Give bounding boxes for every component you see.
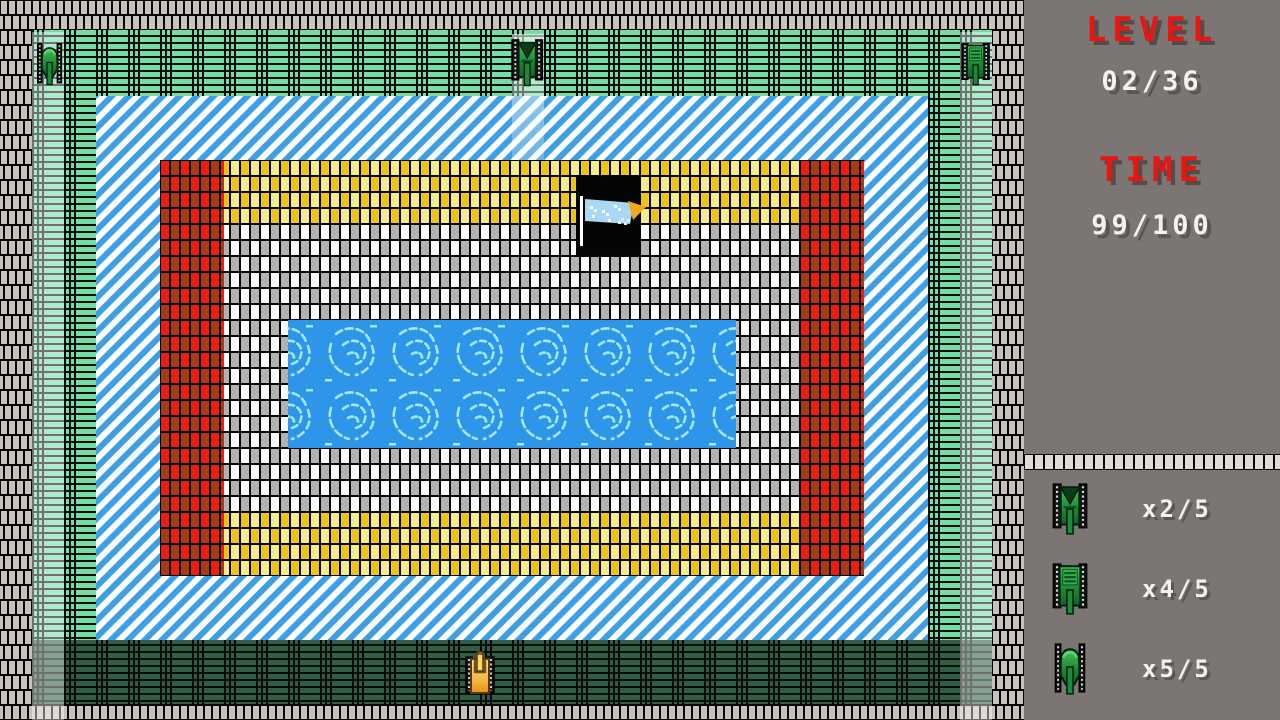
tank-class-3-icon bbox=[1048, 640, 1092, 698]
enemy-tank-top-center[interactable] bbox=[512, 40, 542, 86]
hedge-bottom-band bbox=[32, 640, 992, 704]
tank-class-2-icon bbox=[1048, 560, 1092, 618]
game-screen: LEVEL 02/36 TIME 99/100 x2/5 x4/5 x5/5 bbox=[0, 0, 1280, 720]
spawn-lane-left bbox=[32, 32, 64, 720]
reserve-count: x4/5 bbox=[1142, 575, 1212, 603]
enemy-tank-top-right[interactable] bbox=[962, 44, 989, 85]
tank-class-1-icon bbox=[1048, 480, 1092, 538]
reserve-count: x5/5 bbox=[1142, 655, 1212, 683]
game-field-canvas[interactable] bbox=[0, 0, 1024, 720]
red-brick-wall-left bbox=[160, 160, 224, 576]
hud-divider-brick-strip bbox=[1024, 454, 1280, 470]
reserve-row: x4/5 bbox=[1048, 560, 1260, 618]
player-tank[interactable] bbox=[466, 652, 494, 693]
level-label: LEVEL bbox=[1024, 10, 1280, 50]
flag[interactable] bbox=[576, 175, 646, 255]
hud-sidebar: LEVEL 02/36 TIME 99/100 x2/5 x4/5 x5/5 bbox=[1024, 0, 1280, 720]
water-pool bbox=[288, 320, 736, 448]
reserve-row: x2/5 bbox=[1048, 480, 1260, 538]
reserve-count: x2/5 bbox=[1142, 495, 1212, 523]
reserve-row: x5/5 bbox=[1048, 640, 1260, 698]
spawn-lane-right bbox=[960, 32, 992, 720]
time-label: TIME bbox=[1024, 150, 1280, 190]
level-value: 02/36 bbox=[1024, 66, 1280, 97]
yellow-brick-wall-top bbox=[224, 160, 800, 224]
yellow-brick-wall-bottom bbox=[224, 512, 800, 576]
red-brick-wall-right bbox=[800, 160, 864, 576]
enemy-tank-top-left[interactable] bbox=[38, 44, 62, 85]
time-value: 99/100 bbox=[1024, 210, 1280, 241]
